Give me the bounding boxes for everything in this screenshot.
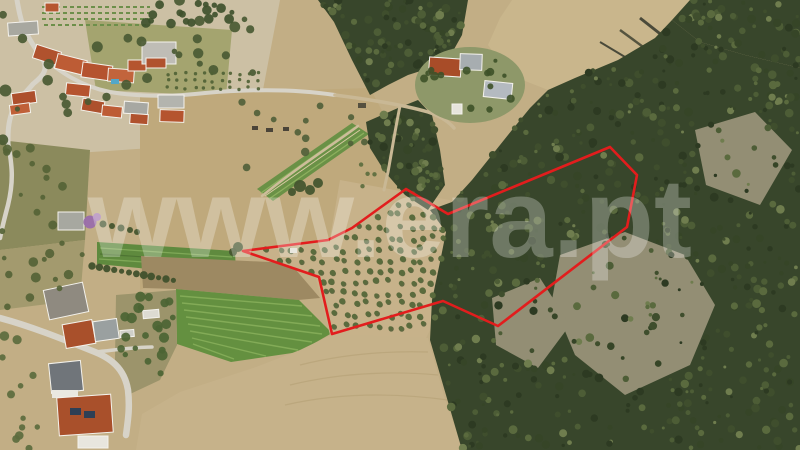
solar-panels xyxy=(70,408,81,415)
house xyxy=(9,103,30,116)
house xyxy=(146,58,166,68)
house xyxy=(8,21,39,36)
aerial-photo-canvas: www.era.pt xyxy=(0,0,800,450)
house xyxy=(45,3,59,12)
water-tank xyxy=(452,104,462,114)
farm-shed xyxy=(460,54,483,71)
house xyxy=(158,95,184,108)
swimming-pool xyxy=(111,79,119,84)
watermark-text: www.era.pt xyxy=(87,156,692,281)
house-annex xyxy=(78,436,108,448)
house xyxy=(130,113,149,124)
house xyxy=(160,110,184,123)
house xyxy=(124,101,149,115)
house xyxy=(65,83,90,97)
house xyxy=(49,360,84,393)
house xyxy=(101,105,122,118)
solar-panels xyxy=(84,411,95,418)
aerial-photo: www.era.pt xyxy=(0,0,800,450)
house xyxy=(93,318,120,341)
shed xyxy=(143,309,160,318)
house xyxy=(62,320,96,349)
house xyxy=(58,212,84,230)
